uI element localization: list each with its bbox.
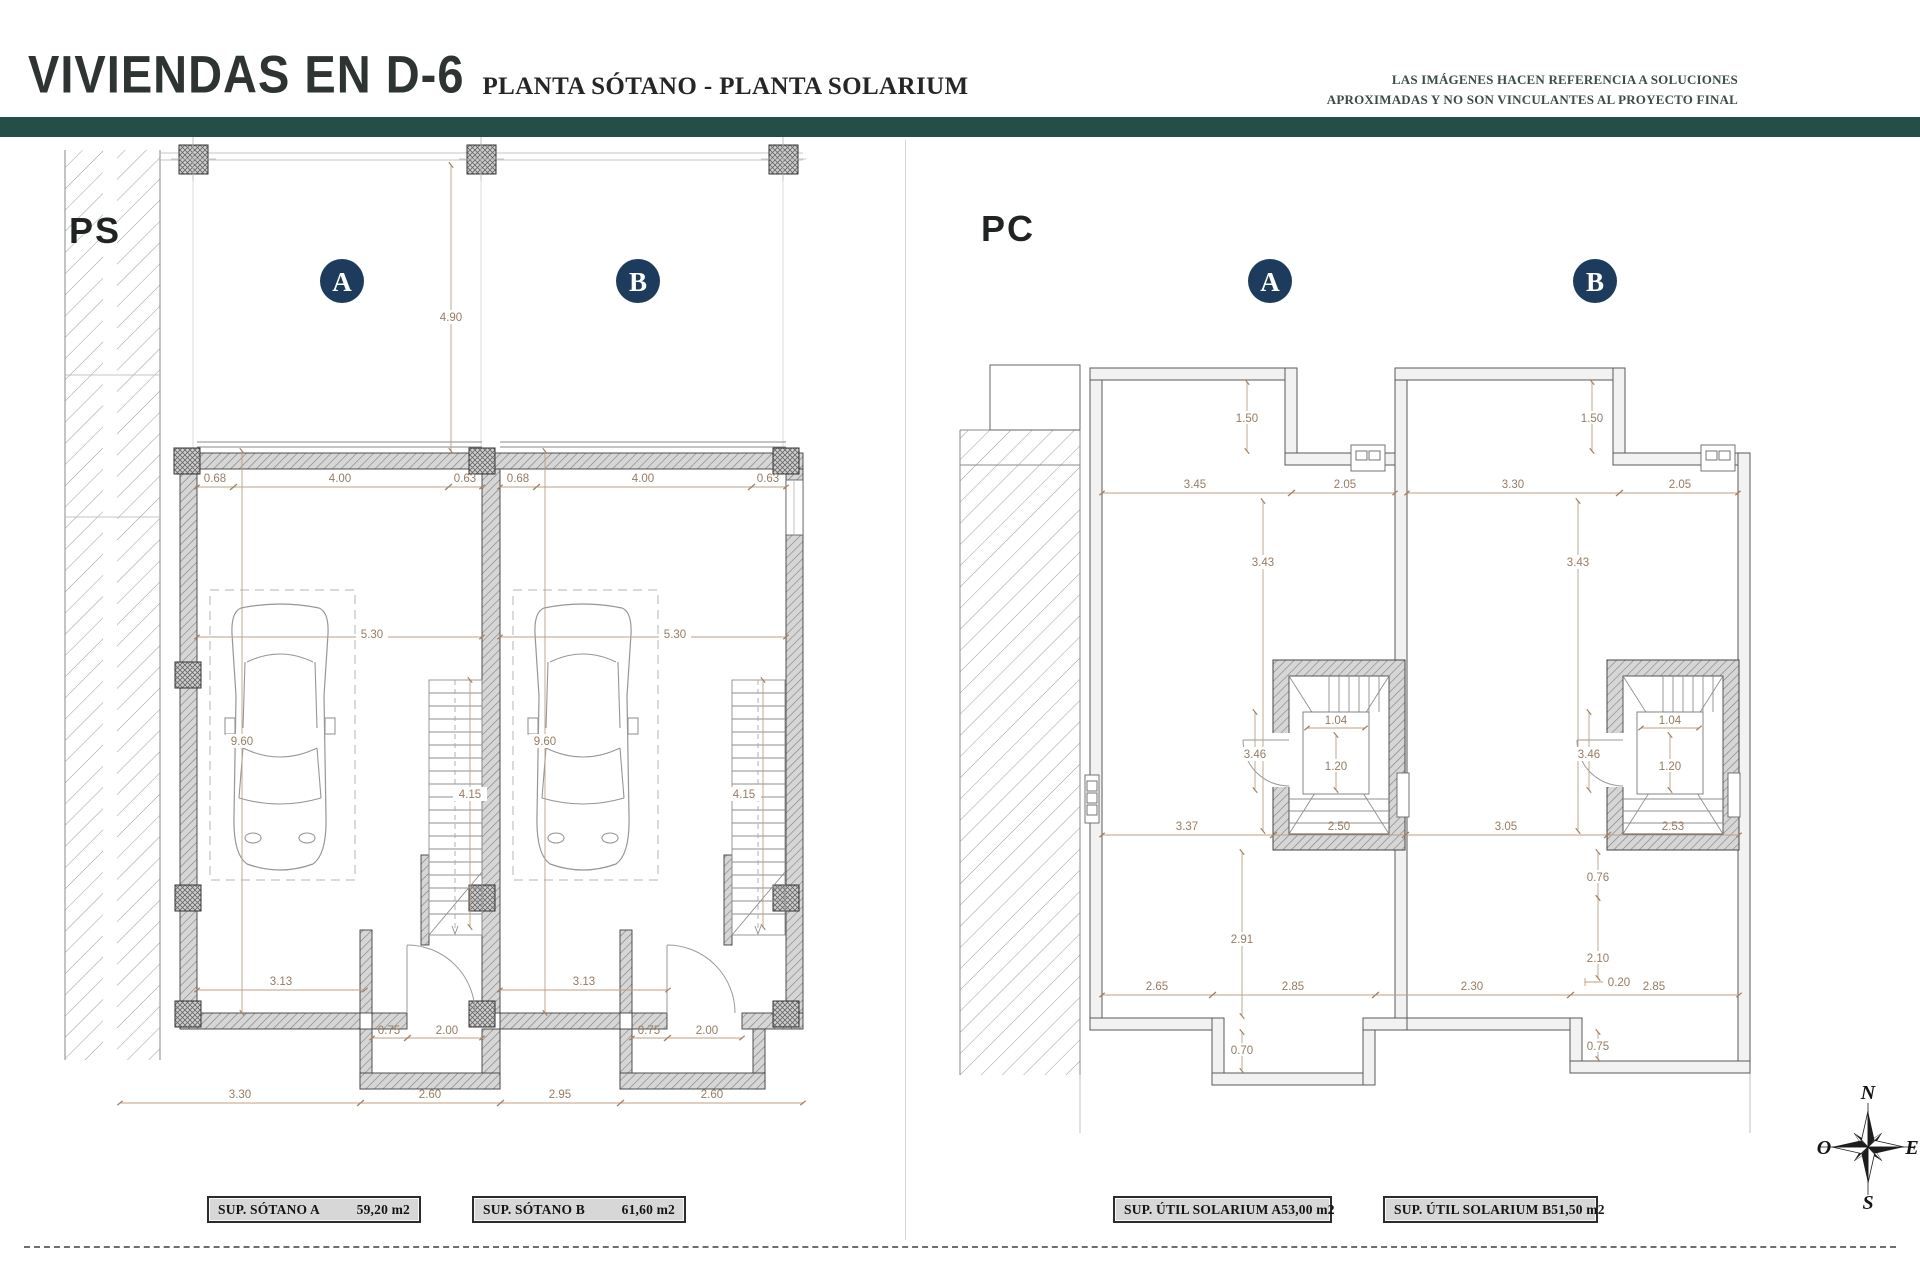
area-box-sotano-a: SUP. SÓTANO A 59,20 m2 (207, 1196, 421, 1223)
dim-label: 3.43 (1567, 557, 1589, 569)
dim-label: 2.10 (1587, 953, 1609, 965)
dim-label: 9.60 (534, 736, 556, 748)
dim-label: 0.75 (1587, 1041, 1609, 1053)
unit-b-badge: B (616, 259, 660, 303)
dim-label: 3.30 (229, 1089, 251, 1101)
dim-label: 5.30 (664, 629, 686, 641)
dim-label: 3.30 (1502, 479, 1524, 491)
dim-label: 2.65 (1146, 981, 1168, 993)
dim-label: 1.04 (1659, 715, 1682, 727)
dim-label: 0.76 (1587, 872, 1609, 884)
area-name: SUP. ÚTIL SOLARIUM A (1124, 1202, 1281, 1218)
dim-label: 2.05 (1334, 479, 1356, 491)
dim-label: 0.68 (507, 473, 529, 485)
dim-label: 2.05 (1669, 479, 1691, 491)
area-value: 53,00 m2 (1281, 1202, 1334, 1218)
dim-label: 3.13 (573, 976, 595, 988)
dim-label: 0.70 (1231, 1045, 1253, 1057)
dim-label: 2.00 (436, 1025, 458, 1037)
compass-north-label: N (1860, 1082, 1877, 1104)
dim-label: 2.53 (1662, 821, 1684, 833)
dim-label: 3.05 (1495, 821, 1517, 833)
dim-label: 4.00 (632, 473, 654, 485)
dim-label: 0.63 (454, 473, 476, 485)
area-box-sotano-b: SUP. SÓTANO B 61,60 m2 (472, 1196, 686, 1223)
dim-label: 2.30 (1461, 981, 1483, 993)
entry-door-b (667, 945, 735, 1013)
area-value: 51,50 m2 (1551, 1202, 1604, 1218)
dim-label: 9.60 (231, 736, 253, 748)
dim-label: 3.43 (1252, 557, 1274, 569)
compass-rose-icon: N S E O (1816, 1078, 1920, 1212)
dim-label: 4.15 (459, 789, 481, 801)
unit-a-badge: A (320, 259, 364, 303)
dim-label: 3.45 (1184, 479, 1206, 491)
dim-label: 3.46 (1578, 749, 1600, 761)
dim-label: 2.95 (549, 1089, 571, 1101)
dim-label: 3.37 (1176, 821, 1198, 833)
unit-a-letter: A (1260, 267, 1280, 297)
dim-label: 4.00 (329, 473, 351, 485)
vent-box-a (1351, 445, 1385, 471)
sheet-header: VIVIENDAS EN D-6 PLANTA SÓTANO - PLANTA … (28, 50, 969, 105)
dim-label: 2.60 (701, 1089, 723, 1101)
unit-a-letter: A (332, 267, 352, 297)
dim-label: 0.68 (204, 473, 226, 485)
top-strip-and-columns (160, 137, 806, 453)
dim-label: 1.20 (1659, 761, 1681, 773)
plan-code-ps: PS (69, 210, 121, 251)
dim-label: 1.04 (1325, 715, 1348, 727)
ps-dimensions: 4.90 0.68 4.00 0.63 0.68 4.00 0.63 5.30 … (120, 165, 803, 1106)
solarium-plan-drawing: PC A B (945, 135, 1775, 1135)
disclaimer-line1: LAS IMÁGENES HACEN REFERENCIA A SOLUCION… (1327, 70, 1738, 90)
dim-label: 4.90 (440, 312, 462, 324)
sheet-bottom-dashed-line (24, 1246, 1896, 1248)
unit-a-badge-pc: A (1248, 259, 1292, 303)
area-name: SUP. SÓTANO B (483, 1202, 585, 1218)
dim-label: 2.85 (1282, 981, 1304, 993)
dim-label: 0.75 (378, 1025, 400, 1037)
area-value: 59,20 m2 (357, 1202, 410, 1218)
compass-east-label: E (1904, 1137, 1918, 1159)
plan-code-pc: PC (981, 208, 1035, 249)
site-hatch-left (65, 150, 160, 1060)
sheet-title: VIVIENDAS EN D-6 (28, 43, 464, 105)
dim-label: 5.30 (361, 629, 383, 641)
unit-b-badge-pc: B (1573, 259, 1617, 303)
vent-box-b (1701, 445, 1735, 471)
unit-b-letter: B (1586, 267, 1604, 297)
dim-label: 3.13 (270, 976, 292, 988)
dim-label: 2.60 (419, 1089, 441, 1101)
unit-b-letter: B (629, 267, 647, 297)
dim-label: 1.20 (1325, 761, 1347, 773)
dim-label: 0.20 (1608, 977, 1630, 989)
dim-label: 1.50 (1236, 413, 1258, 425)
dim-label: 2.91 (1231, 934, 1253, 946)
compass-west-label: O (1817, 1137, 1831, 1159)
dim-label: 2.50 (1328, 821, 1350, 833)
compass-south-label: S (1862, 1192, 1873, 1212)
plans-divider-line (905, 140, 906, 1240)
area-box-solarium-a: SUP. ÚTIL SOLARIUM A 53,00 m2 (1113, 1196, 1332, 1223)
area-box-solarium-b: SUP. ÚTIL SOLARIUM B 51,50 m2 (1383, 1196, 1598, 1223)
sheet-subtitle: PLANTA SÓTANO - PLANTA SOLARIUM (482, 73, 968, 101)
basement-plan-drawing: PS A B (55, 135, 815, 1195)
dim-label: 0.75 (638, 1025, 660, 1037)
dim-label: 1.50 (1581, 413, 1603, 425)
header-rule-bar (0, 117, 1920, 137)
dim-label: 3.46 (1244, 749, 1266, 761)
dim-label: 2.00 (696, 1025, 718, 1037)
disclaimer-line2: APROXIMADAS Y NO SON VINCULANTES AL PROY… (1327, 90, 1738, 110)
dim-label: 4.15 (733, 789, 755, 801)
entry-door-a (407, 945, 475, 1013)
area-name: SUP. ÚTIL SOLARIUM B (1394, 1202, 1551, 1218)
dim-label: 0.63 (757, 473, 779, 485)
area-value: 61,60 m2 (622, 1202, 675, 1218)
dim-label: 2.85 (1643, 981, 1665, 993)
area-name: SUP. SÓTANO A (218, 1202, 320, 1218)
disclaimer-note: LAS IMÁGENES HACEN REFERENCIA A SOLUCION… (1327, 70, 1738, 109)
